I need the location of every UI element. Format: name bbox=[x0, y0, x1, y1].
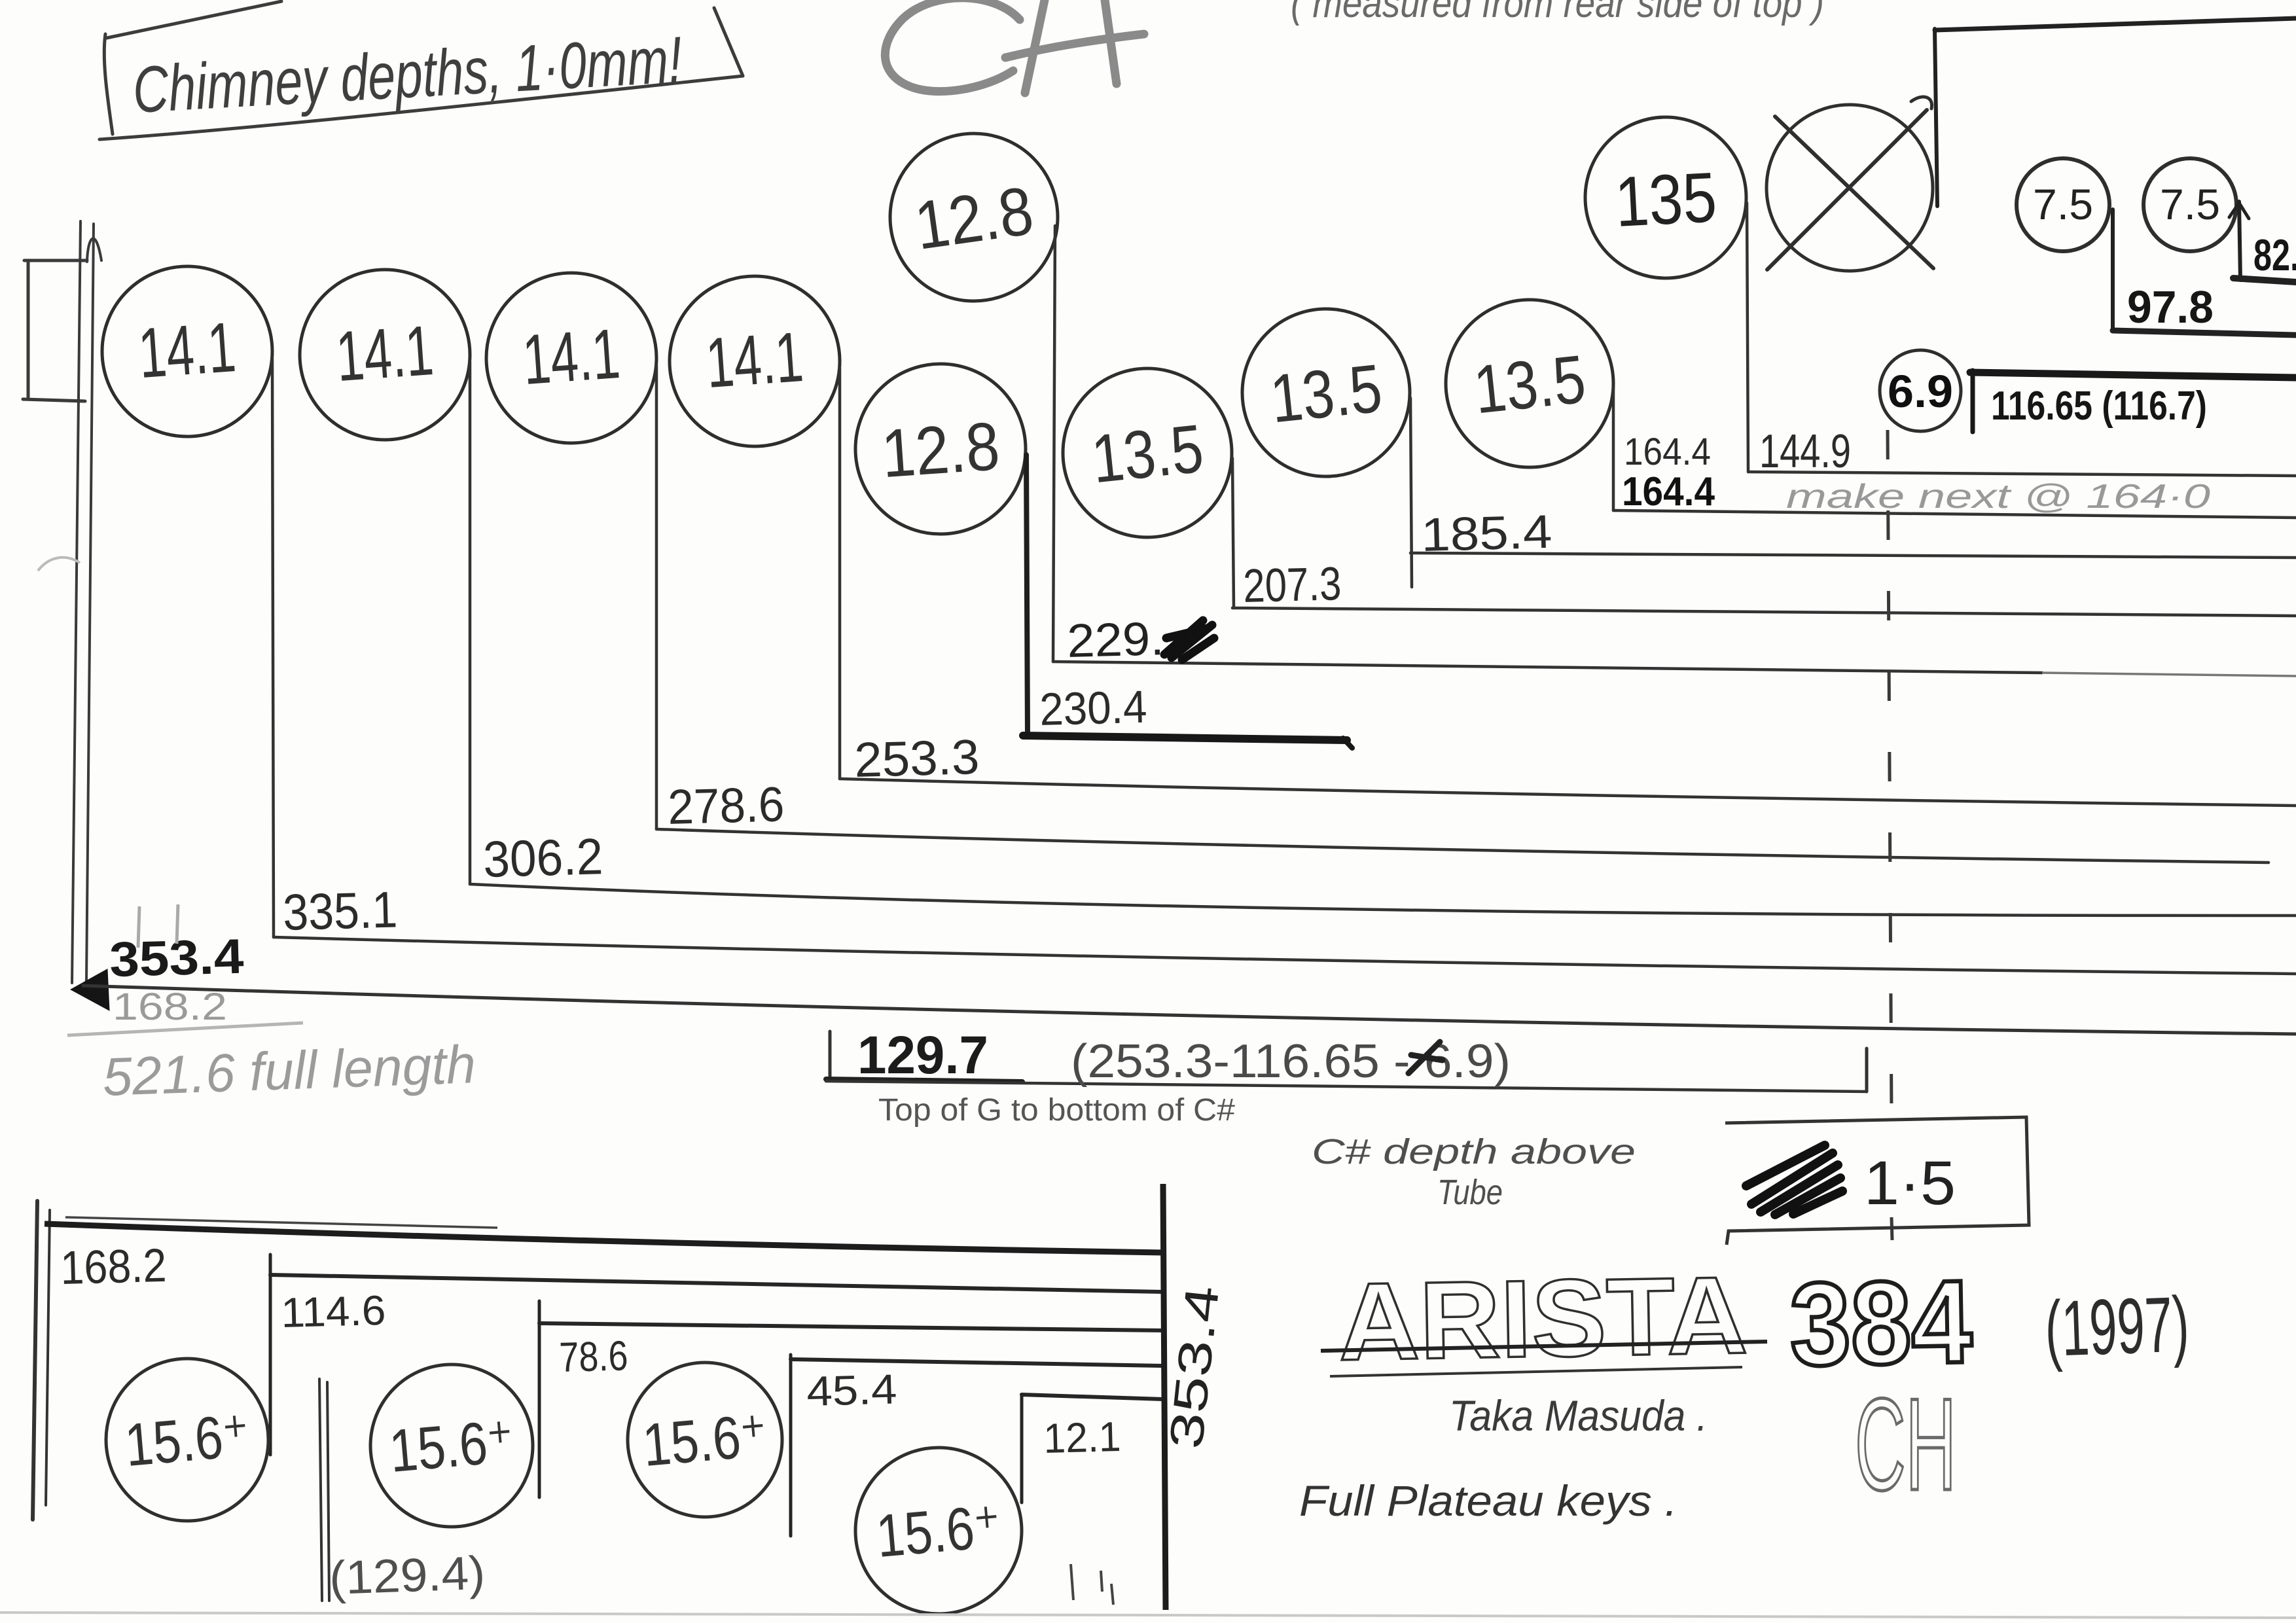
svg-text:14.1: 14.1 bbox=[334, 310, 436, 396]
svg-text:230.4: 230.4 bbox=[1039, 681, 1147, 735]
svg-text:Full Plateau keys .: Full Plateau keys . bbox=[1299, 1476, 1677, 1525]
svg-text:13.5: 13.5 bbox=[1088, 410, 1207, 497]
svg-text:14.1: 14.1 bbox=[136, 307, 238, 393]
svg-text:168.2: 168.2 bbox=[60, 1240, 167, 1294]
svg-text:168.2: 168.2 bbox=[113, 986, 227, 1028]
svg-text:Top of G to bottom of C#: Top of G to bottom of C# bbox=[878, 1093, 1235, 1128]
svg-text:( measured from rear side of t: ( measured from rear side of top ) bbox=[1291, 0, 1824, 26]
svg-text:278.6: 278.6 bbox=[667, 776, 785, 834]
svg-text:306.2: 306.2 bbox=[482, 827, 603, 888]
svg-text:164.4: 164.4 bbox=[1624, 431, 1711, 473]
svg-text:15.6⁺: 15.6⁺ bbox=[387, 1408, 516, 1485]
svg-text:13.5: 13.5 bbox=[1267, 350, 1386, 437]
svg-text:CH: CH bbox=[1855, 1372, 1956, 1518]
svg-text:164.4: 164.4 bbox=[1622, 469, 1715, 514]
svg-text:12.8: 12.8 bbox=[910, 173, 1037, 264]
svg-text:Taka Masuda .: Taka Masuda . bbox=[1449, 1391, 1708, 1440]
svg-text:13.5: 13.5 bbox=[1471, 341, 1589, 428]
svg-text:1·5: 1·5 bbox=[1864, 1149, 1956, 1218]
svg-text:make next @ 164·0: make next @ 164·0 bbox=[1786, 478, 2210, 516]
svg-text:Tube: Tube bbox=[1437, 1173, 1503, 1212]
svg-text:97.8: 97.8 bbox=[2127, 281, 2214, 332]
svg-text:384: 384 bbox=[1789, 1256, 1973, 1391]
svg-text:ARISTA: ARISTA bbox=[1337, 1253, 1748, 1383]
svg-text:335.1: 335.1 bbox=[282, 880, 398, 941]
svg-text:15.6⁺: 15.6⁺ bbox=[874, 1493, 1003, 1570]
svg-text:6.9: 6.9 bbox=[1888, 366, 1953, 417]
svg-text:(1997): (1997) bbox=[2043, 1280, 2191, 1373]
svg-text:129.7: 129.7 bbox=[857, 1026, 988, 1085]
svg-text:207.3: 207.3 bbox=[1242, 558, 1342, 613]
svg-text:14.1: 14.1 bbox=[704, 317, 806, 402]
svg-text:C# depth above: C# depth above bbox=[1312, 1132, 1636, 1171]
svg-text:135: 135 bbox=[1613, 157, 1719, 241]
svg-text:(129.4): (129.4) bbox=[329, 1547, 486, 1605]
svg-text:7.5: 7.5 bbox=[2033, 180, 2093, 228]
svg-text:14.1: 14.1 bbox=[520, 313, 622, 399]
svg-text:12.8: 12.8 bbox=[879, 408, 1002, 492]
svg-text:253.3: 253.3 bbox=[853, 729, 980, 787]
svg-text:144.9: 144.9 bbox=[1759, 425, 1851, 478]
svg-text:116.65 (116.7): 116.65 (116.7) bbox=[1991, 383, 2207, 429]
svg-text:15.6⁺: 15.6⁺ bbox=[122, 1402, 252, 1479]
svg-text:15.6⁺: 15.6⁺ bbox=[640, 1402, 770, 1479]
svg-text:229.: 229. bbox=[1066, 613, 1164, 668]
svg-text:12.1: 12.1 bbox=[1043, 1413, 1121, 1462]
svg-text:82.: 82. bbox=[2253, 230, 2296, 280]
svg-text:185.4: 185.4 bbox=[1420, 506, 1552, 562]
svg-text:45.4: 45.4 bbox=[806, 1365, 897, 1415]
svg-text:114.6: 114.6 bbox=[280, 1287, 386, 1336]
svg-text:78.6: 78.6 bbox=[558, 1332, 628, 1381]
svg-text:7.5: 7.5 bbox=[2160, 180, 2220, 228]
